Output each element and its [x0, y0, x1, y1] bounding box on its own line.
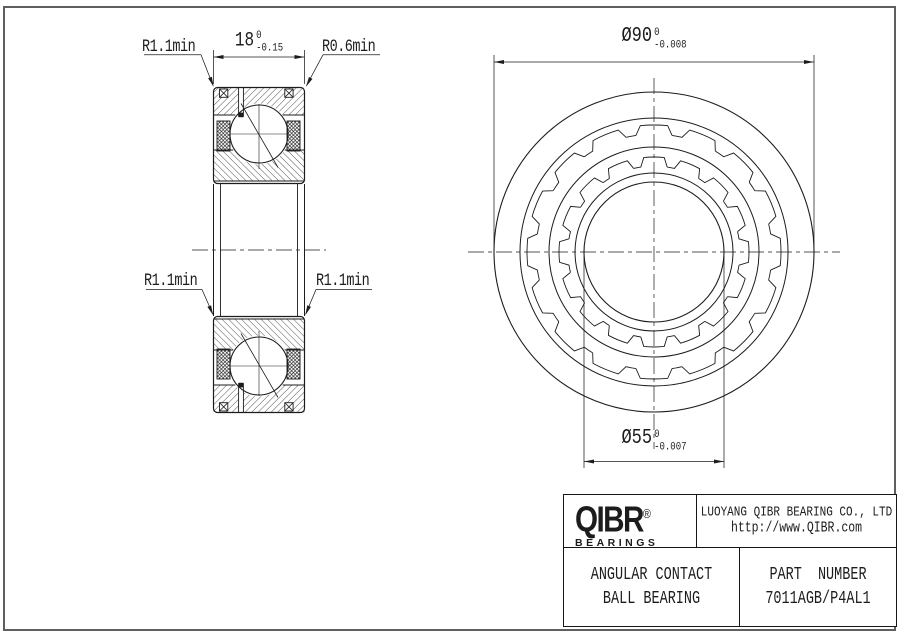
logo-wordmark: QIBR® [575, 498, 669, 536]
width-dimension-text: 18 0 -0.15 [214, 29, 304, 54]
product-name-line2: BALL BEARING [603, 589, 700, 610]
product-name-line1: ANGULAR CONTACT [591, 565, 713, 586]
radius-label-top-left: R1.1min [142, 38, 195, 58]
part-number-label: PART NUMBER [769, 565, 866, 586]
bore-diameter-dimension-text: Ø55 0 -0.007 [604, 428, 704, 453]
part-number-value: 7011AGB/P4AL1 [765, 589, 870, 610]
outer-diameter-value: Ø90 [621, 26, 652, 49]
company-name: LUOYANG QIBR BEARING CO., LTD [701, 506, 892, 521]
radius-label-mid-left: R1.1min [144, 272, 197, 292]
radius-label-top-right: R0.6min [322, 38, 375, 58]
title-block: QIBR® BEARINGS LUOYANG QIBR BEARING CO.,… [563, 494, 897, 627]
registered-mark: ® [643, 506, 651, 521]
bore-diameter-value: Ø55 [621, 428, 652, 451]
radius-label-mid-right: R1.1min [316, 272, 369, 292]
drawing-sheet: 18 0 -0.15 R1.1min R0.6min R1.1min R1.1m… [0, 0, 900, 636]
part-number-cell: PART NUMBER 7011AGB/P4AL1 [740, 548, 896, 626]
width-dimension-value: 18 [235, 29, 254, 52]
company-website: http://www.QIBR.com [731, 520, 862, 536]
company-info-cell: LUOYANG QIBR BEARING CO., LTD http://www… [697, 495, 896, 547]
company-logo: QIBR® BEARINGS [564, 495, 697, 547]
width-dimension-tolerance: 0 -0.15 [256, 29, 283, 54]
title-block-top-row: QIBR® BEARINGS LUOYANG QIBR BEARING CO.,… [564, 495, 896, 548]
product-name-cell: ANGULAR CONTACT BALL BEARING [564, 548, 740, 626]
title-block-bottom-row: ANGULAR CONTACT BALL BEARING PART NUMBER… [564, 548, 896, 626]
outer-diameter-dimension-text: Ø90 0 -0.008 [604, 26, 704, 51]
outer-diameter-tolerance: 0 -0.008 [654, 26, 686, 51]
bore-diameter-tolerance: 0 -0.007 [654, 428, 686, 453]
